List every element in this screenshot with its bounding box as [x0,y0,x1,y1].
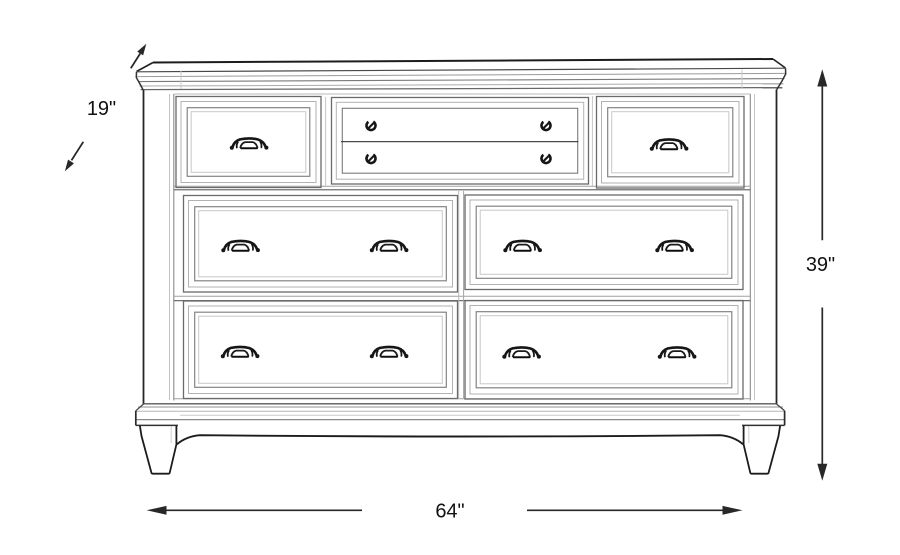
svg-text:39": 39" [806,254,835,276]
svg-text:19": 19" [87,98,116,120]
svg-text:64": 64" [435,501,464,523]
